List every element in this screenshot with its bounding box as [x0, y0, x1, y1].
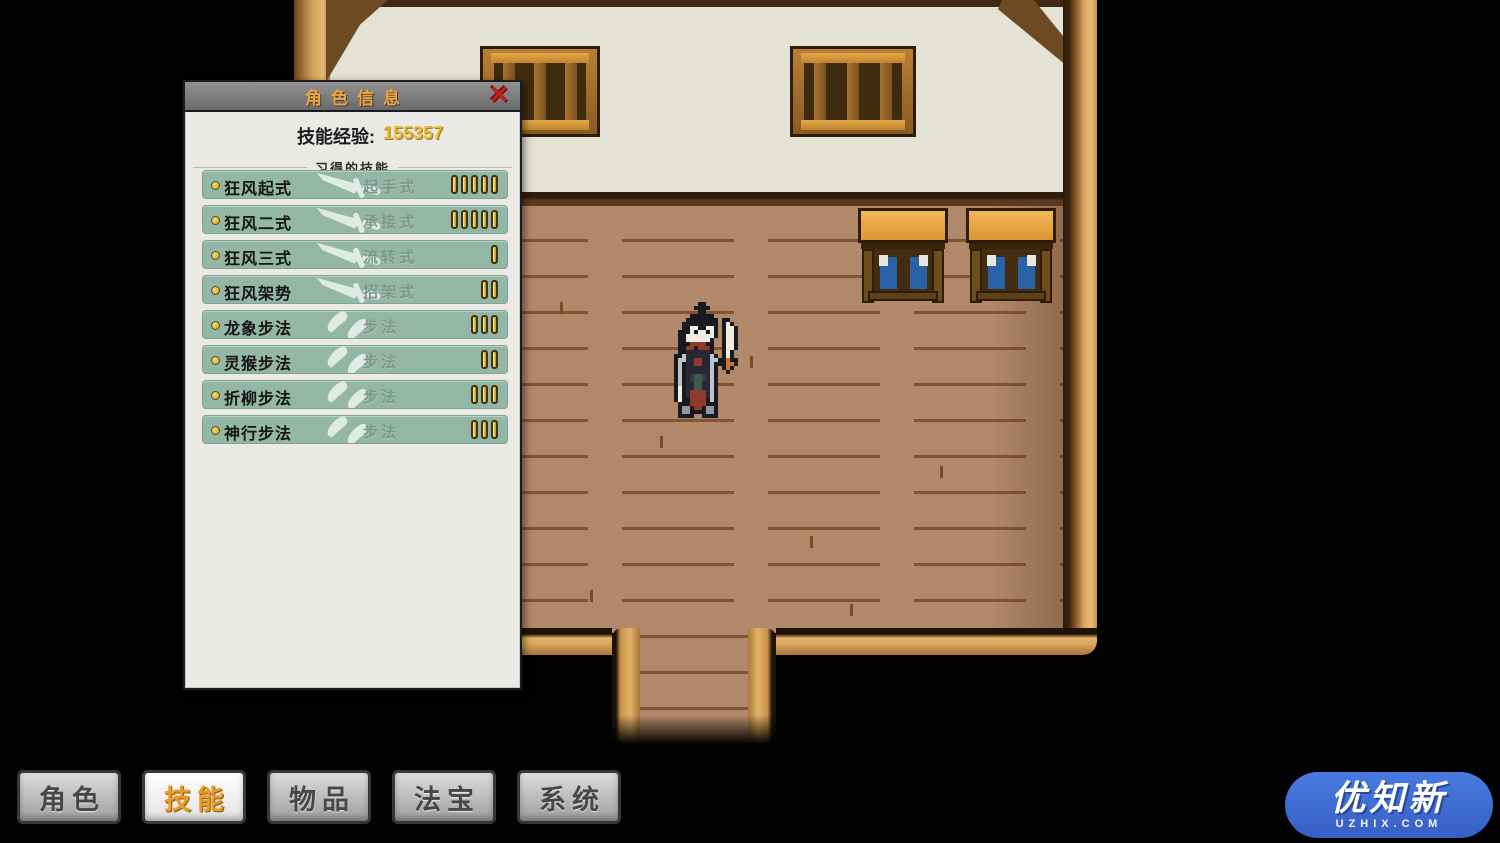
desk-crossbar — [976, 291, 1046, 301]
skill-name: 龙象步法 — [224, 315, 292, 339]
skill-name: 狂风三式 — [224, 245, 292, 269]
menu-button-系统[interactable]: 系统 — [517, 770, 621, 824]
skill-bullet-icon — [211, 216, 220, 225]
level-bar — [491, 350, 498, 369]
level-bar — [481, 420, 488, 439]
desk-shelf — [874, 249, 932, 291]
skill-type-label: 承接式 — [363, 211, 417, 232]
skill-row[interactable]: 灵猴步法 步法 — [202, 345, 508, 374]
corridor-shadow — [612, 715, 776, 747]
level-bar — [491, 280, 498, 299]
sprite-pixels — [674, 302, 678, 306]
window-bar — [534, 60, 546, 123]
window-bar — [814, 60, 826, 123]
skill-name: 狂风起式 — [224, 175, 292, 199]
room-bottom-wall-right — [776, 628, 1097, 655]
player-character-sprite — [674, 302, 678, 306]
level-bar — [481, 280, 488, 299]
skill-bullet-icon — [211, 321, 220, 330]
book-pages — [919, 255, 928, 266]
divider-line — [193, 167, 307, 168]
level-bar — [471, 175, 478, 194]
skill-row[interactable]: 神行步法 步法 — [202, 415, 508, 444]
blue-book — [910, 257, 927, 289]
menu-button-法宝[interactable]: 法宝 — [392, 770, 496, 824]
skill-type-label: 步法 — [363, 386, 399, 407]
desk-shelf — [982, 249, 1040, 291]
level-bar — [471, 210, 478, 229]
level-bar — [491, 420, 498, 439]
panel-title: 角色信息 — [296, 84, 409, 109]
level-bar — [471, 385, 478, 404]
level-bar — [471, 315, 478, 334]
skill-row[interactable]: 龙象步法 步法 — [202, 310, 508, 339]
book-pages — [987, 255, 996, 266]
skill-row[interactable]: 折柳步法 步法 — [202, 380, 508, 409]
level-bar — [471, 420, 478, 439]
skill-level-bars — [481, 350, 498, 369]
level-bar — [461, 175, 468, 194]
skill-bullet-icon — [211, 286, 220, 295]
level-bar — [491, 385, 498, 404]
skill-type-label: 流转式 — [363, 246, 417, 267]
window-plank — [801, 53, 905, 63]
close-icon[interactable]: ✕ — [484, 80, 514, 110]
window-plank — [491, 53, 589, 63]
skill-type-label: 步法 — [363, 421, 399, 442]
book-desk — [966, 205, 1056, 310]
desk-top — [966, 208, 1056, 243]
barred-window-right — [790, 46, 916, 137]
divider-line — [398, 167, 512, 168]
menu-button-技能-active[interactable]: 技能 — [142, 770, 246, 824]
skill-level-bars — [471, 385, 498, 404]
blue-book — [1018, 257, 1035, 289]
level-bar — [481, 175, 488, 194]
skill-bullet-icon — [211, 426, 220, 435]
skill-bullet-icon — [211, 391, 220, 400]
level-bar — [491, 315, 498, 334]
skill-level-bars — [491, 245, 498, 264]
level-bar — [481, 350, 488, 369]
blue-book — [880, 257, 897, 289]
skill-exp-label: 技能经验: — [297, 123, 375, 149]
window-interior — [804, 63, 902, 120]
window-bar — [880, 60, 892, 123]
watermark-badge: 优知新 UZHIX.COM — [1285, 772, 1493, 838]
panel-header: 角色信息 ✕ — [185, 82, 520, 112]
building-right-wall — [1063, 0, 1097, 633]
skill-list: 狂风起式 起手式 狂风二式 承接式 狂风三式 流转式 狂风架势 — [202, 170, 508, 450]
window-plank — [801, 120, 905, 130]
skill-level-bars — [481, 280, 498, 299]
level-bar — [491, 245, 498, 264]
bottom-menu-bar: 角色技能物品法宝系统 — [17, 770, 621, 824]
skill-level-bars — [471, 420, 498, 439]
level-bar — [491, 175, 498, 194]
menu-button-角色[interactable]: 角色 — [17, 770, 121, 824]
skill-row[interactable]: 狂风起式 起手式 — [202, 170, 508, 199]
menu-button-物品[interactable]: 物品 — [267, 770, 371, 824]
level-bar — [451, 210, 458, 229]
skill-level-bars — [471, 315, 498, 334]
desk-crossbar — [868, 291, 938, 301]
level-bar — [451, 175, 458, 194]
window-bar — [847, 60, 859, 123]
book-desk — [858, 205, 948, 310]
skill-row[interactable]: 狂风二式 承接式 — [202, 205, 508, 234]
watermark-title: 优知新 — [1330, 781, 1447, 817]
level-bar — [461, 210, 468, 229]
desk-shadow — [861, 243, 945, 249]
skill-type-label: 起手式 — [363, 176, 417, 197]
skill-row[interactable]: 狂风架势 招架式 — [202, 275, 508, 304]
game-screen: 角色信息 ✕ 技能经验: 155357 习得的技能 狂风起式 起手式 狂风二式 … — [0, 0, 1500, 843]
skill-bullet-icon — [211, 356, 220, 365]
skill-name: 灵猴步法 — [224, 350, 292, 374]
skill-exp-value: 155357 — [383, 123, 443, 149]
desk-shadow — [969, 243, 1053, 249]
book-pages — [879, 255, 888, 266]
skill-bullet-icon — [211, 181, 220, 190]
skill-row[interactable]: 狂风三式 流转式 — [202, 240, 508, 269]
desk-top — [858, 208, 948, 243]
skill-bullet-icon — [211, 251, 220, 260]
level-bar — [491, 210, 498, 229]
skill-type-label: 招架式 — [363, 281, 417, 302]
level-bar — [481, 210, 488, 229]
skill-name: 神行步法 — [224, 420, 292, 444]
blue-book — [988, 257, 1005, 289]
skill-name: 狂风二式 — [224, 210, 292, 234]
level-bar — [481, 315, 488, 334]
level-bar — [481, 385, 488, 404]
skill-exp-line: 技能经验: 155357 — [185, 123, 520, 149]
book-pages — [1027, 255, 1036, 266]
skill-type-label: 步法 — [363, 316, 399, 337]
window-bar — [565, 60, 577, 123]
skill-name: 折柳步法 — [224, 385, 292, 409]
skill-level-bars — [451, 210, 498, 229]
skill-name: 狂风架势 — [224, 280, 292, 304]
watermark-subtitle: UZHIX.COM — [1336, 818, 1443, 830]
skill-level-bars — [451, 175, 498, 194]
skill-type-label: 步法 — [363, 351, 399, 372]
character-info-panel: 角色信息 ✕ 技能经验: 155357 习得的技能 狂风起式 起手式 狂风二式 … — [183, 80, 522, 690]
roof-top-beam — [330, 0, 1063, 7]
